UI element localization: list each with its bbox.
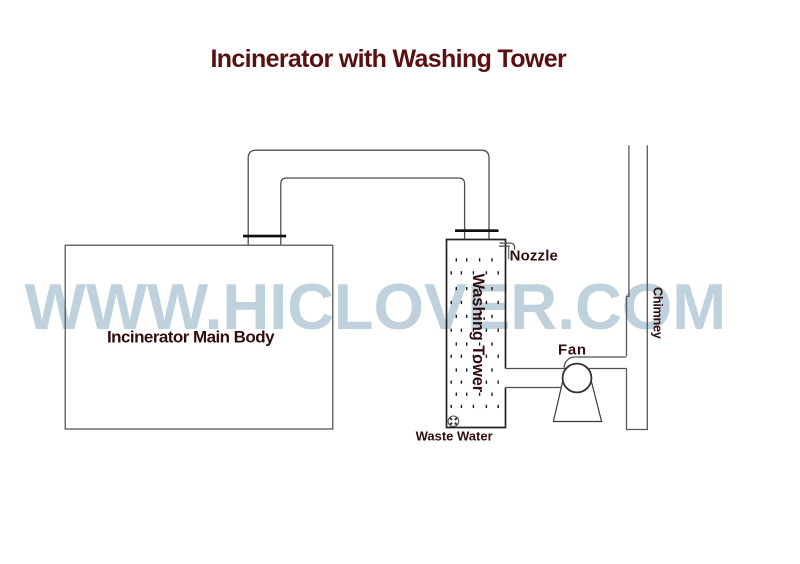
svg-text:Chimney: Chimney [650, 287, 664, 339]
svg-text:Nozzle: Nozzle [510, 248, 558, 265]
svg-text:Washing Tower: Washing Tower [469, 274, 487, 393]
svg-text:Incinerator Main Body: Incinerator Main Body [107, 328, 275, 347]
svg-text:Fan: Fan [558, 341, 587, 358]
svg-text:Incinerator with Washing Tower: Incinerator with Washing Tower [211, 45, 567, 73]
svg-text:Waste Water: Waste Water [416, 428, 493, 443]
